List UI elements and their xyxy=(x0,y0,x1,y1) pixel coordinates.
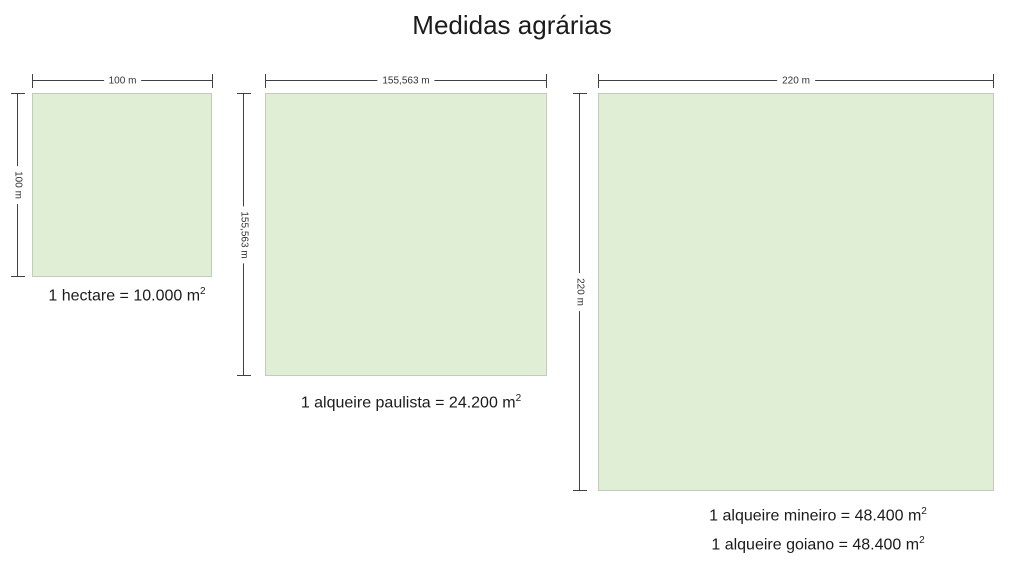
hectare-height-dimension: 100 m xyxy=(11,93,25,277)
alqueire-mineiro-caption: 1 alqueire mineiro = 48.400 m2 xyxy=(638,506,998,525)
alqueire-mineiro-height-label: 220 m xyxy=(574,273,587,311)
alqueire-paulista-width-dimension: 155,563 m xyxy=(265,74,547,88)
caption-superscript: 2 xyxy=(919,535,925,546)
caption-text: 1 hectare = 10.000 m xyxy=(48,287,200,304)
hectare-square xyxy=(32,93,212,277)
caption-text: 1 alqueire mineiro = 48.400 m xyxy=(709,507,921,524)
alqueire-goiano-caption: 1 alqueire goiano = 48.400 m2 xyxy=(638,535,998,554)
caption-superscript: 2 xyxy=(516,393,522,404)
alqueire-mineiro-width-label: 220 m xyxy=(777,75,815,88)
alqueire-mineiro-square xyxy=(598,93,994,491)
alqueire-mineiro-width-dimension: 220 m xyxy=(598,74,994,88)
alqueire-paulista-caption: 1 alqueire paulista = 24.200 m2 xyxy=(281,393,541,412)
caption-superscript: 2 xyxy=(200,286,206,297)
caption-text: 1 alqueire paulista = 24.200 m xyxy=(301,394,516,411)
caption-text: 1 alqueire goiano = 48.400 m xyxy=(711,536,919,553)
hectare-height-label: 100 m xyxy=(12,166,25,204)
alqueire-paulista-square xyxy=(265,93,547,376)
alqueire-paulista-width-label: 155,563 m xyxy=(377,75,434,88)
diagram-canvas: Medidas agrárias 100 m 100 m 1 hectare =… xyxy=(0,0,1024,576)
alqueire-mineiro-height-dimension: 220 m xyxy=(573,93,587,491)
hectare-width-dimension: 100 m xyxy=(32,74,213,88)
hectare-width-label: 100 m xyxy=(104,75,142,88)
page-title: Medidas agrárias xyxy=(0,10,1024,41)
caption-superscript: 2 xyxy=(921,506,927,517)
hectare-caption: 1 hectare = 10.000 m2 xyxy=(27,286,227,305)
alqueire-paulista-height-dimension: 155,563 m xyxy=(237,93,251,376)
alqueire-paulista-height-label: 155,563 m xyxy=(238,206,251,263)
